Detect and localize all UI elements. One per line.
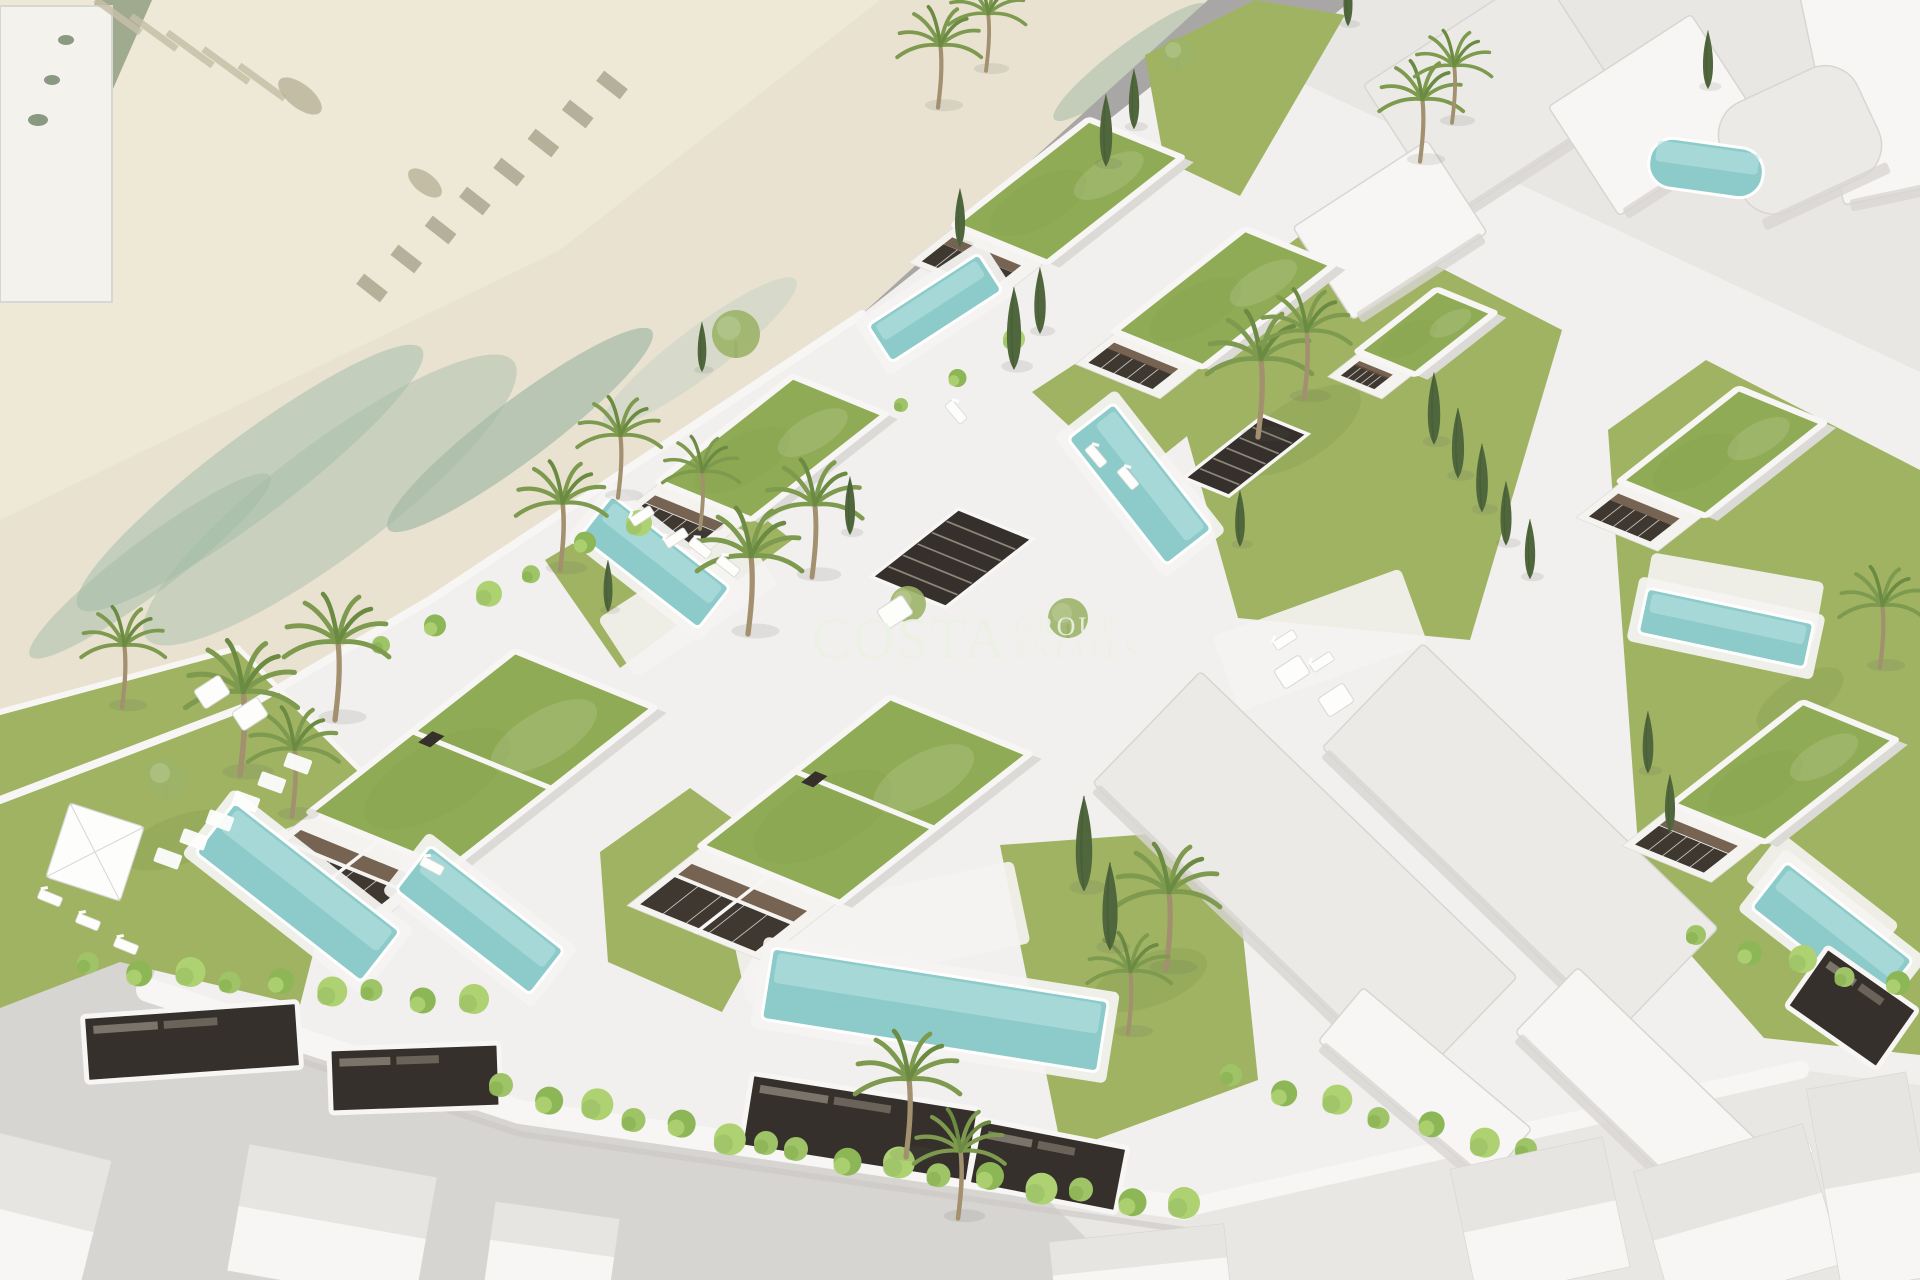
round-tree [1048,598,1088,638]
round-tree [712,310,760,358]
garage-door [82,1002,301,1083]
garage-door [329,1043,501,1113]
render-canvas: { "watermark": { "brand": "COSTA", "grou… [0,0,1920,1280]
aerial-development-render [0,0,1920,1280]
round-tree [146,758,186,798]
round-tree [1162,38,1194,70]
beachfront-building-roof [0,6,112,302]
